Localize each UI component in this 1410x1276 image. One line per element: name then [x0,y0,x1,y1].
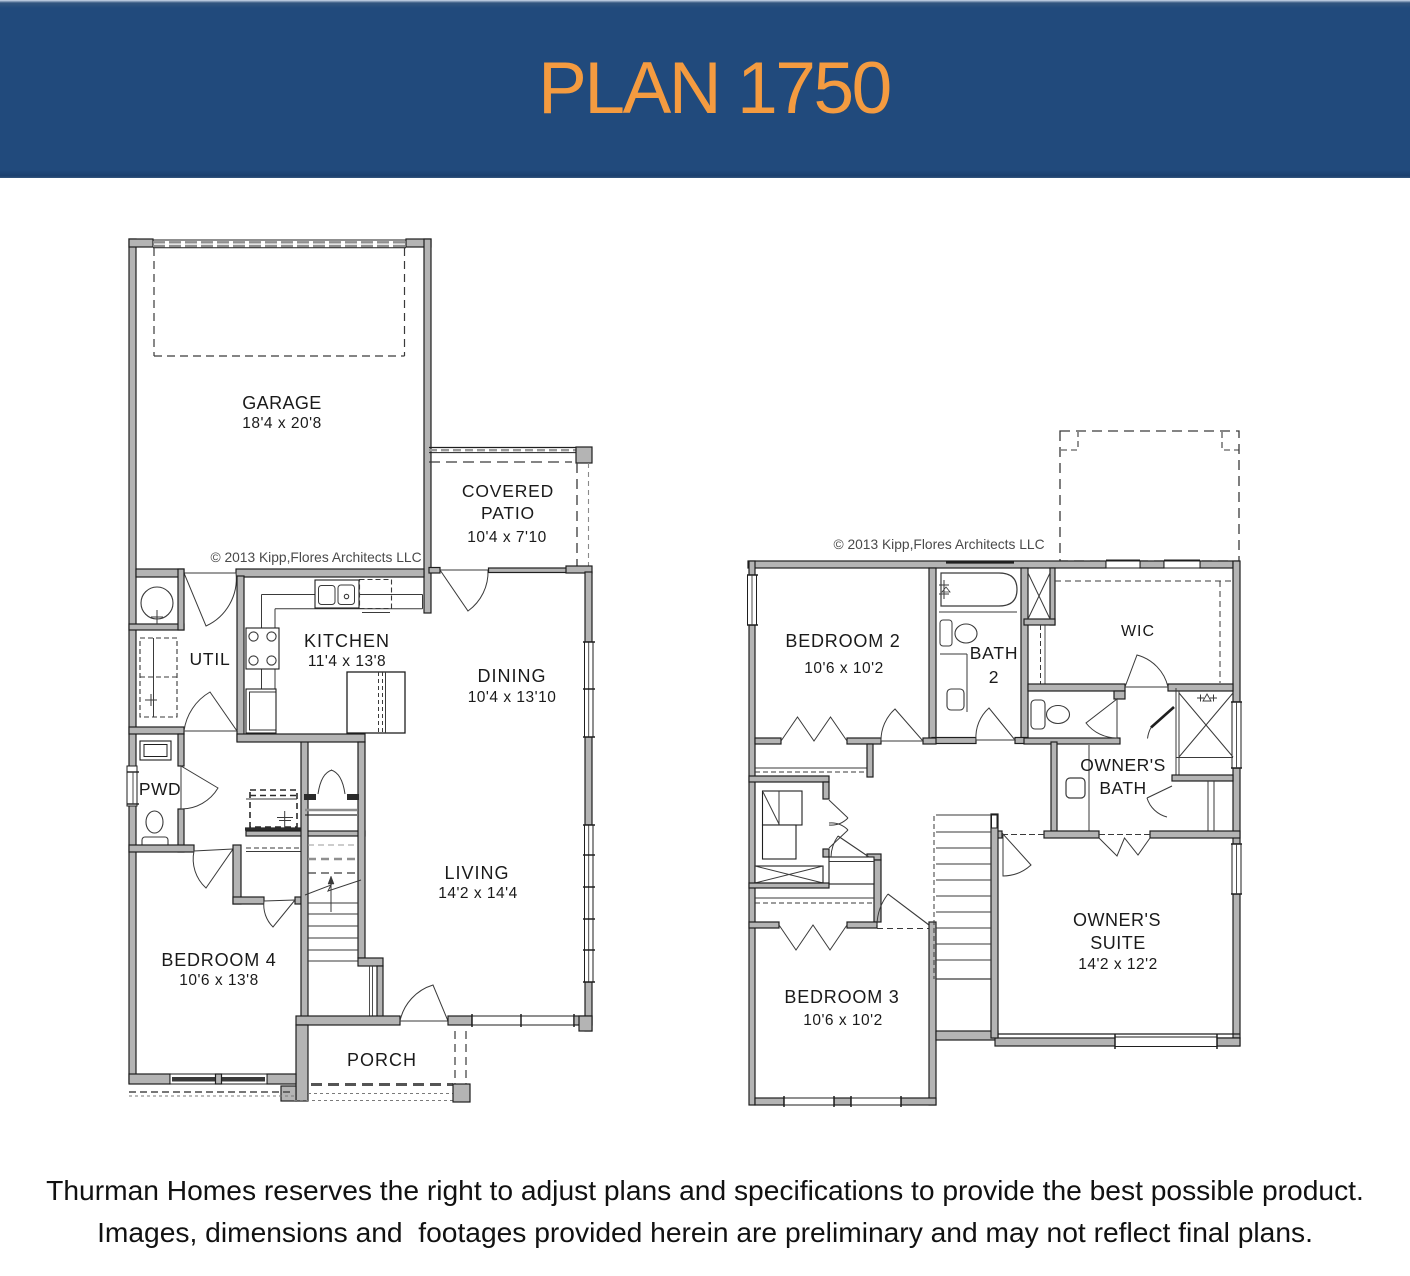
svg-text:© 2013 Kipp,Flores Architects: © 2013 Kipp,Flores Architects LLC [833,537,1044,552]
svg-text:BEDROOM 4: BEDROOM 4 [161,950,276,970]
svg-text:10'4 x 13'10: 10'4 x 13'10 [468,689,557,706]
svg-text:UTIL: UTIL [189,649,230,669]
svg-text:PWD: PWD [139,779,181,799]
svg-text:10'6 x 10'2: 10'6 x 10'2 [803,1012,883,1029]
svg-text:2: 2 [989,667,1000,687]
svg-text:BEDROOM 3: BEDROOM 3 [784,987,899,1007]
svg-text:18'4 x 20'8: 18'4 x 20'8 [242,415,322,432]
svg-text:COVERED: COVERED [462,481,554,501]
svg-text:10'6 x 13'8: 10'6 x 13'8 [179,972,259,989]
svg-text:WIC: WIC [1121,623,1155,640]
svg-text:OWNER'S: OWNER'S [1080,755,1166,775]
svg-text:DINING: DINING [478,666,547,686]
svg-text:PATIO: PATIO [481,503,535,523]
svg-text:14'2 x 12'2: 14'2 x 12'2 [1078,956,1158,973]
svg-text:PORCH: PORCH [347,1050,417,1070]
svg-text:GARAGE: GARAGE [242,393,321,413]
svg-text:OWNER'S: OWNER'S [1073,910,1161,930]
svg-text:© 2013 Kipp,Flores Architects: © 2013 Kipp,Flores Architects LLC [210,550,421,565]
svg-text:KITCHEN: KITCHEN [304,631,390,651]
svg-text:BEDROOM 2: BEDROOM 2 [785,631,900,651]
svg-text:BATH: BATH [1099,778,1146,798]
svg-text:10'6 x 10'2: 10'6 x 10'2 [804,660,884,677]
svg-text:BATH: BATH [970,643,1019,663]
svg-text:LIVING: LIVING [444,863,509,883]
svg-text:10'4 x 7'10: 10'4 x 7'10 [467,529,547,546]
svg-text:14'2 x 14'4: 14'2 x 14'4 [438,885,518,902]
svg-text:11'4 x 13'8: 11'4 x 13'8 [308,653,386,670]
svg-text:SUITE: SUITE [1090,933,1146,953]
